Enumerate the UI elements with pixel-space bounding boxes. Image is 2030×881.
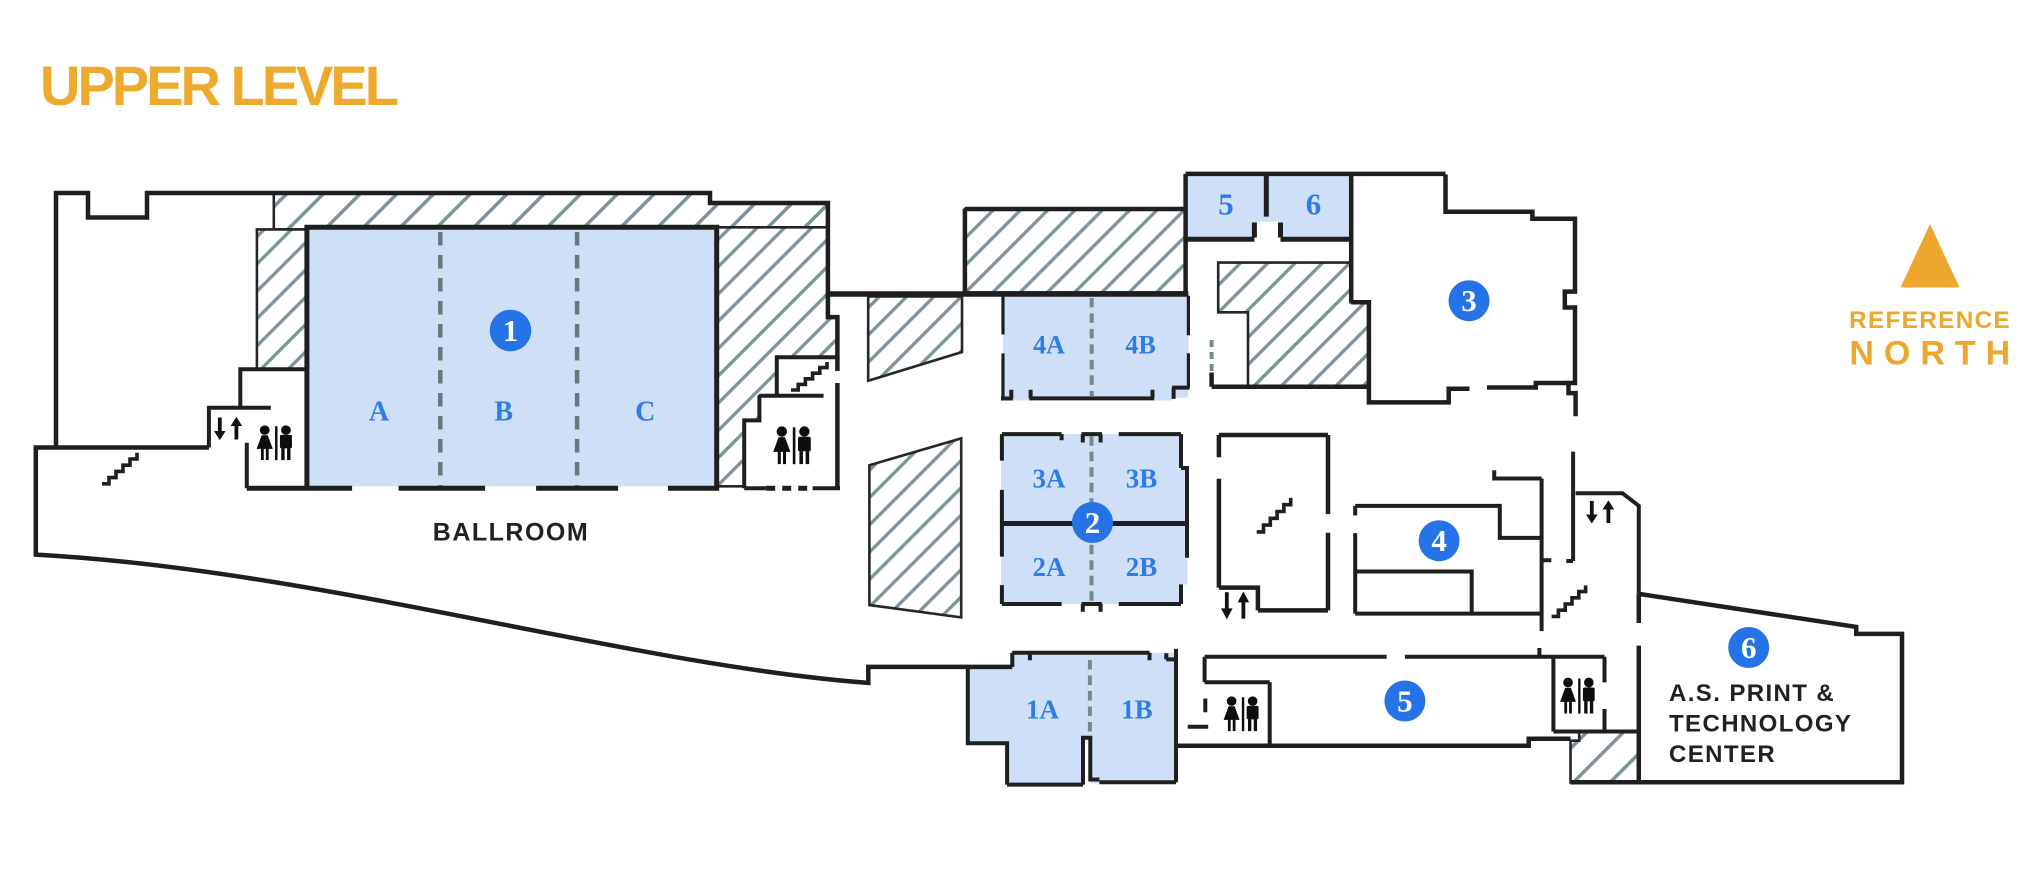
svg-text:6: 6	[1306, 187, 1322, 222]
svg-text:CENTER: CENTER	[1669, 741, 1776, 768]
svg-text:UPPER LEVEL: UPPER LEVEL	[40, 54, 398, 117]
svg-text:B: B	[494, 397, 513, 428]
svg-text:2: 2	[1085, 505, 1101, 540]
svg-text:A.S. PRINT &: A.S. PRINT &	[1669, 680, 1835, 707]
svg-text:1A: 1A	[1026, 695, 1060, 725]
svg-text:TECHNOLOGY: TECHNOLOGY	[1669, 711, 1852, 738]
svg-text:NORTH: NORTH	[1849, 335, 2020, 373]
svg-text:2B: 2B	[1126, 552, 1158, 582]
svg-text:6: 6	[1741, 630, 1757, 665]
svg-text:5: 5	[1218, 187, 1234, 222]
svg-text:4: 4	[1431, 523, 1447, 558]
svg-text:4B: 4B	[1125, 331, 1155, 360]
svg-text:5: 5	[1397, 684, 1413, 719]
svg-text:BALLROOM: BALLROOM	[433, 519, 589, 547]
svg-text:3: 3	[1461, 283, 1477, 318]
svg-text:REFERENCE: REFERENCE	[1849, 307, 2011, 334]
svg-text:4A: 4A	[1033, 331, 1065, 360]
svg-text:C: C	[635, 397, 655, 428]
svg-text:2A: 2A	[1033, 552, 1067, 582]
svg-text:1B: 1B	[1121, 695, 1153, 725]
svg-text:3B: 3B	[1126, 464, 1158, 494]
svg-text:1: 1	[503, 313, 519, 348]
svg-text:A: A	[369, 397, 390, 428]
svg-text:3A: 3A	[1033, 464, 1067, 494]
